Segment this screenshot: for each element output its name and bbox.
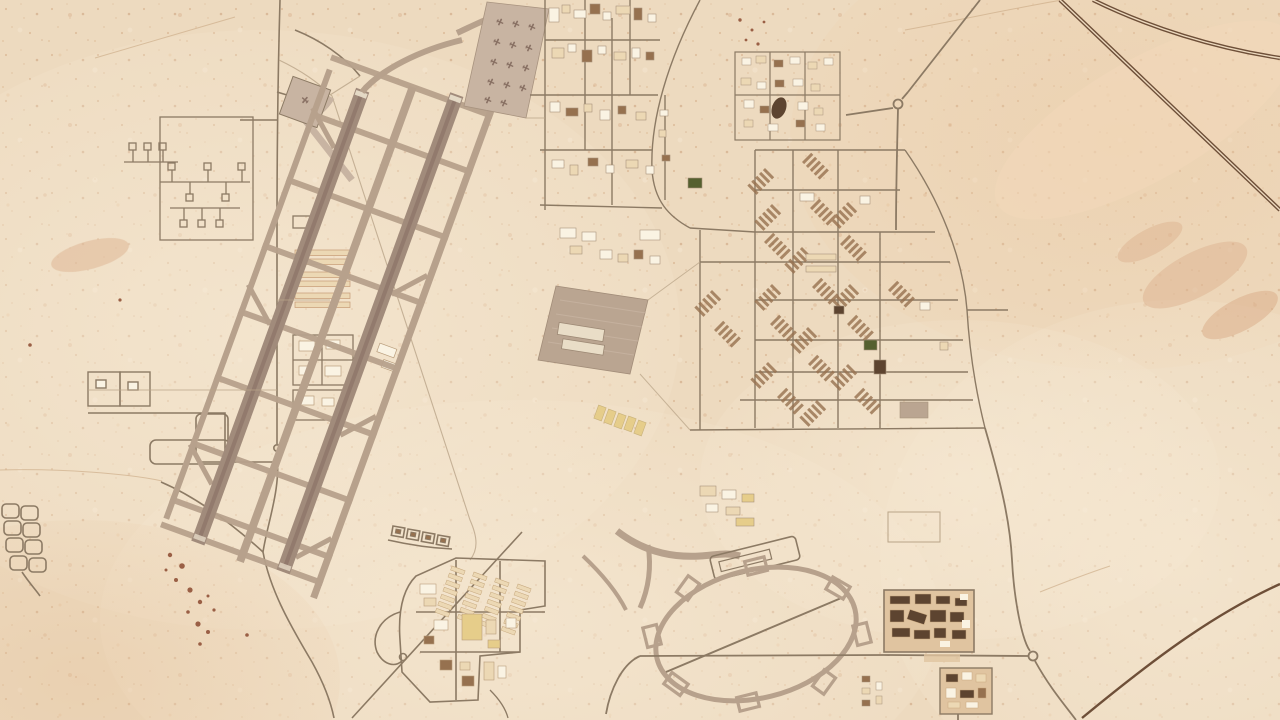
desert-terrain <box>0 0 1280 720</box>
compound-b <box>940 668 992 714</box>
satellite-map-canvas <box>0 0 1280 720</box>
compound-a <box>884 590 974 662</box>
satellite-image <box>0 0 1280 720</box>
